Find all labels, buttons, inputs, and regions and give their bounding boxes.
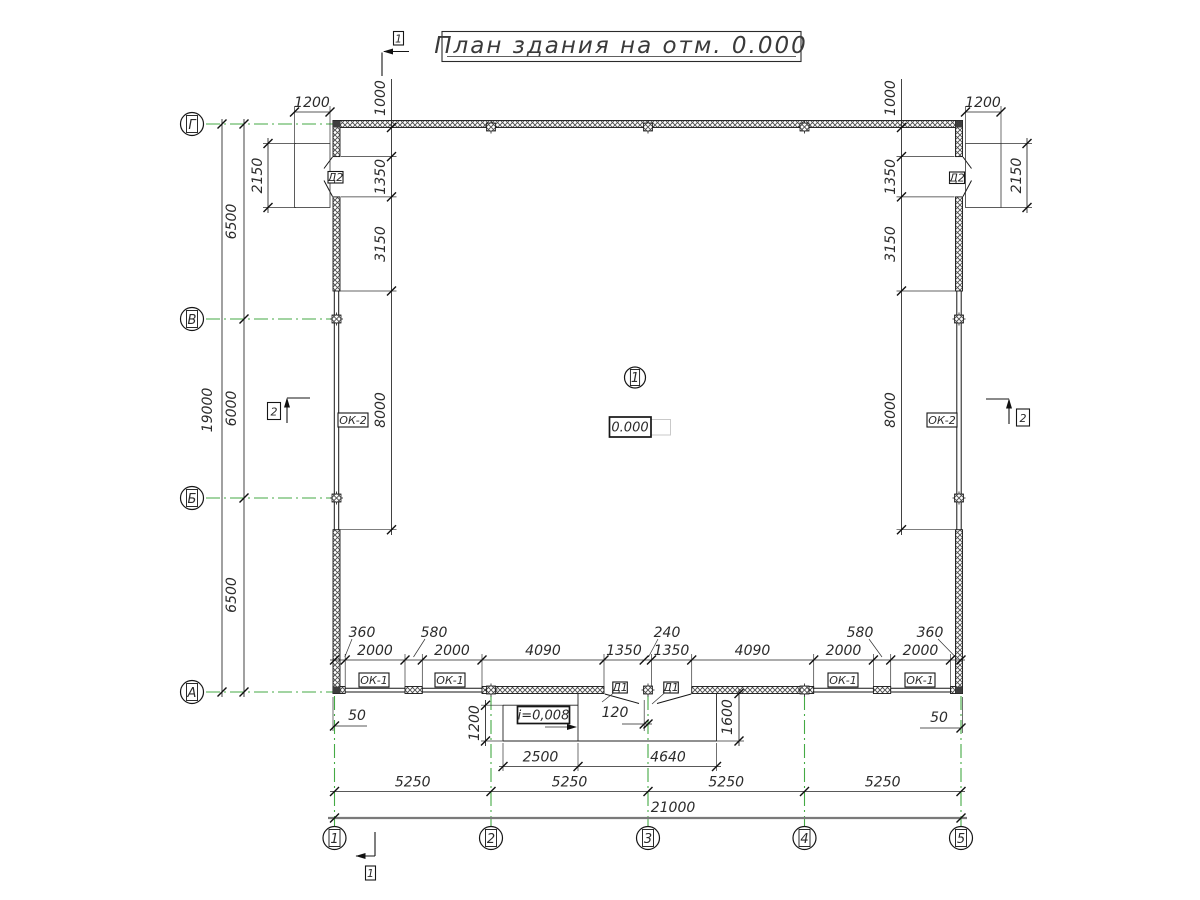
section-2-label-right: 2 bbox=[1020, 412, 1027, 425]
axis-row-b: Б bbox=[188, 492, 197, 507]
axis-col-4: 4 bbox=[800, 832, 808, 847]
axis-col-1: 1 bbox=[330, 832, 338, 847]
section-1-label-bottom: 1 bbox=[367, 867, 374, 880]
extension-lines bbox=[263, 106, 1032, 771]
dim-left-chain-4: 8000 bbox=[373, 392, 389, 428]
walls bbox=[333, 121, 963, 694]
dim-bottom-6: 4090 bbox=[735, 643, 771, 659]
dim-small-3: 240 bbox=[654, 625, 681, 641]
window-label-ok1-a: ОК-1 bbox=[360, 674, 387, 687]
section-mark-1-bottom: 1 bbox=[356, 832, 376, 880]
axis-row-v: В bbox=[188, 313, 197, 328]
dim-offset-right: 50 bbox=[930, 710, 948, 726]
dim-bottom-total: 21000 bbox=[651, 800, 696, 816]
dim-door-offset: 120 bbox=[602, 705, 629, 721]
section-2-label-left: 2 bbox=[271, 406, 278, 419]
elevation-mark: 0.000 bbox=[610, 417, 671, 437]
axis-bubbles-columns: 1 2 3 4 5 bbox=[323, 827, 973, 850]
dim-left-chain-3: 3150 bbox=[373, 226, 389, 262]
dim-left-bay-2: 6000 bbox=[224, 391, 240, 427]
dim-left-chain-1: 1000 bbox=[373, 80, 389, 116]
door-label-d2-right: Д2 bbox=[948, 172, 965, 185]
dim-right-chain-1: 1000 bbox=[883, 80, 899, 116]
column-marks bbox=[330, 121, 966, 697]
floor-plan-canvas: План здания на отм. 0.000 bbox=[0, 0, 1200, 900]
window-label-ok2-left: ОК-2 bbox=[339, 414, 366, 427]
dim-porch-left-width: 1200 bbox=[294, 95, 330, 111]
dim-offset-left: 50 bbox=[348, 708, 366, 724]
slope-label: i=0,008 bbox=[518, 709, 570, 724]
door-label-d1-right: Д1 bbox=[662, 681, 679, 694]
slope-annotation: i=0,008 bbox=[518, 707, 578, 731]
door-label-d1-left: Д1 bbox=[611, 681, 628, 694]
dim-left-bay-1: 6500 bbox=[224, 204, 240, 240]
dim-right-chain-2: 1350 bbox=[883, 159, 899, 195]
drawing-title: План здания на отм. 0.000 bbox=[434, 32, 808, 62]
axis-col-5: 5 bbox=[957, 832, 965, 847]
dim-small-2: 580 bbox=[421, 625, 448, 641]
floor-plan-drawing: План здания на отм. 0.000 bbox=[0, 0, 1200, 900]
dim-ramp-width: 1200 bbox=[467, 705, 483, 741]
dim-bay-1: 5250 bbox=[395, 775, 431, 791]
dim-bottom-2: 2000 bbox=[434, 643, 470, 659]
dim-bottom-8: 2000 bbox=[903, 643, 939, 659]
dim-porch-right-depth: 2150 bbox=[1009, 158, 1025, 194]
dim-small-5: 360 bbox=[917, 625, 944, 641]
dim-bottom-3: 4090 bbox=[525, 643, 561, 659]
dim-bottom-4: 1350 bbox=[606, 643, 642, 659]
dim-right-chain-3: 3150 bbox=[883, 226, 899, 262]
dim-bay-2: 5250 bbox=[552, 775, 588, 791]
elevation-value: 0.000 bbox=[611, 421, 648, 436]
section-1-label-top: 1 bbox=[395, 33, 402, 46]
dim-porch-depth: 1600 bbox=[720, 699, 736, 735]
dim-left-total: 19000 bbox=[200, 388, 216, 433]
dim-small-1: 360 bbox=[349, 625, 376, 641]
dim-porch-left-depth: 2150 bbox=[250, 158, 266, 194]
dim-bay-4: 5250 bbox=[865, 775, 901, 791]
dim-bottom-7: 2000 bbox=[826, 643, 862, 659]
section-mark-2-left: 2 bbox=[268, 398, 311, 424]
dim-left-bay-3: 6500 bbox=[224, 577, 240, 613]
dim-porch-length: 4640 bbox=[650, 750, 686, 766]
window-label-ok1-c: ОК-1 bbox=[829, 674, 856, 687]
dim-left-chain-2: 1350 bbox=[373, 159, 389, 195]
door-label-d2-left: Д2 bbox=[327, 171, 344, 184]
dim-porch-right-width: 1200 bbox=[965, 95, 1001, 111]
window-label-ok1-d: ОК-1 bbox=[906, 674, 933, 687]
window-label-ok2-right: ОК-2 bbox=[928, 414, 955, 427]
dim-ramp-length: 2500 bbox=[523, 750, 559, 766]
dim-bay-3: 5250 bbox=[708, 775, 744, 791]
axis-grid-lines bbox=[206, 124, 961, 826]
section-mark-1-top: 1 bbox=[382, 32, 409, 77]
dim-small-4: 580 bbox=[847, 625, 874, 641]
room-number-mark: 1 bbox=[625, 367, 646, 388]
dim-bottom-1: 2000 bbox=[357, 643, 393, 659]
axis-col-3: 3 bbox=[644, 832, 652, 847]
dim-right-chain-4: 8000 bbox=[883, 392, 899, 428]
page-title: План здания на отм. 0.000 bbox=[434, 33, 808, 59]
section-mark-2-right: 2 bbox=[986, 399, 1030, 427]
axis-col-2: 2 bbox=[487, 832, 495, 847]
room-number: 1 bbox=[631, 371, 639, 386]
window-label-ok1-b: ОК-1 bbox=[436, 674, 463, 687]
axis-row-a: А bbox=[187, 686, 197, 701]
dim-bottom-5: 1350 bbox=[654, 643, 690, 659]
